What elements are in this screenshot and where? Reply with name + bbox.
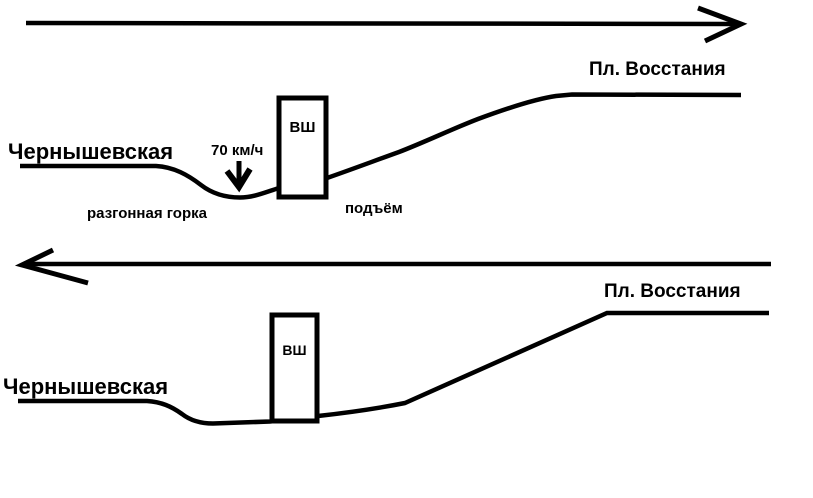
climb-label: подъём bbox=[345, 201, 403, 218]
top-vent-shaft-label: ВШ bbox=[279, 120, 326, 137]
bottom-left-station-label: Чернышевская bbox=[3, 375, 168, 399]
track-profile-diagram: Чернышевская Пл. Восстания ВШ 70 км/ч ра… bbox=[0, 0, 813, 498]
bottom-vent-shaft-label: ВШ bbox=[272, 343, 317, 358]
top-right-station-label: Пл. Восстания bbox=[589, 60, 726, 81]
bottom-vent-shaft-box bbox=[272, 315, 317, 421]
top-left-station-label: Чернышевская bbox=[8, 140, 173, 164]
bottom-direction-left-arrow-icon bbox=[22, 250, 771, 283]
bottom-track-profile-line bbox=[18, 313, 769, 424]
speed-down-arrow-icon bbox=[227, 161, 250, 187]
speed-label: 70 км/ч bbox=[211, 143, 263, 160]
top-direction-right-arrow-icon bbox=[26, 8, 741, 41]
acceleration-hill-label: разгонная горка bbox=[87, 206, 207, 223]
bottom-right-station-label: Пл. Восстания bbox=[604, 282, 741, 303]
top-vent-shaft-box bbox=[279, 98, 326, 197]
